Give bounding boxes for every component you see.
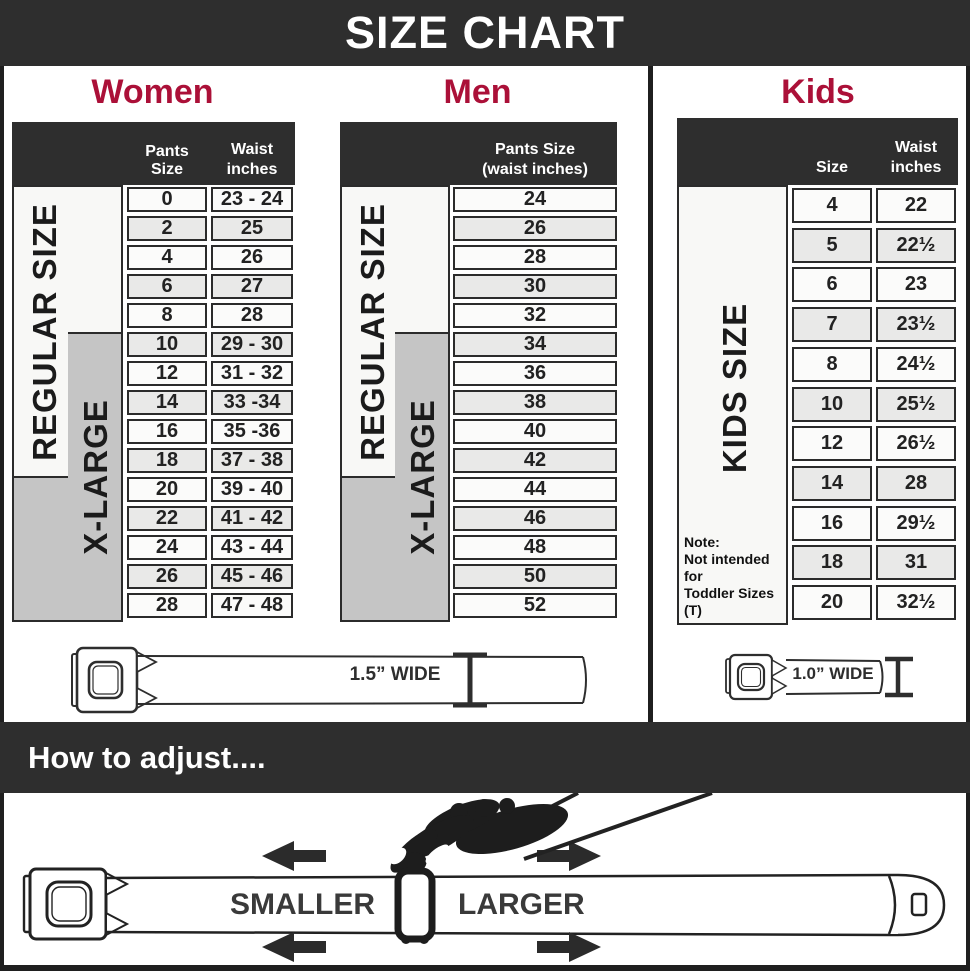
kids-note: Note: Not intended for Toddler Sizes (T) xyxy=(684,534,786,619)
pants-size-cell: 8 xyxy=(127,303,207,328)
adult-belt-width-label: 1.5” WIDE xyxy=(340,664,450,686)
women-xlarge-box: X-LARGE xyxy=(68,332,123,622)
pants-size-cell: 24 xyxy=(453,187,617,212)
waist-inches-cell: 37 - 38 xyxy=(211,448,293,473)
kids-belt-width-label: 1.0” WIDE xyxy=(787,664,879,684)
belt-slider-icon xyxy=(398,871,432,944)
waist-inches-cell: 45 - 46 xyxy=(211,564,293,589)
kids-size-label: KIDS SIZE xyxy=(716,302,754,472)
pants-size-cell: 28 xyxy=(453,245,617,270)
pants-size-cell: 48 xyxy=(453,535,617,560)
size-cell: 20 xyxy=(792,585,872,620)
kids-size-box: KIDS SIZE Note: Not intended for Toddler… xyxy=(677,185,788,625)
size-cell: 7 xyxy=(792,307,872,342)
pants-size-cell: 12 xyxy=(127,361,207,386)
arrow-left-top-icon xyxy=(262,841,326,871)
waist-inches-cell: 23 xyxy=(876,267,956,302)
waist-inches-cell: 29 - 30 xyxy=(211,332,293,357)
waist-inches-cell: 25½ xyxy=(876,387,956,422)
waist-inches-cell: 41 - 42 xyxy=(211,506,293,531)
waist-inches-cell: 31 - 32 xyxy=(211,361,293,386)
seatbelt-buckle-icon xyxy=(24,869,127,939)
pants-size-cell: 28 xyxy=(127,593,207,618)
women-heading: Women xyxy=(0,72,305,112)
waist-inches-cell: 22 xyxy=(876,188,956,223)
men-xlarge-label: X-LARGE xyxy=(404,399,442,555)
pants-size-cell: 38 xyxy=(453,390,617,415)
waist-inches-cell: 25 xyxy=(211,216,293,241)
size-cell: 16 xyxy=(792,506,872,541)
waist-inches-cell: 39 - 40 xyxy=(211,477,293,502)
kids-col2-header-line2: inches xyxy=(876,159,956,177)
size-cell: 8 xyxy=(792,347,872,382)
waist-inches-cell: 43 - 44 xyxy=(211,535,293,560)
kids-table: Size Waist inches KIDS SIZE Note: Not in… xyxy=(677,118,958,625)
larger-label: LARGER xyxy=(458,888,578,922)
women-table: Pants Size Waist inches REGULAR SIZE X-L… xyxy=(12,122,295,625)
pants-size-cell: 0 xyxy=(127,187,207,212)
pants-size-cell: 44 xyxy=(453,477,617,502)
men-table-header: Pants Size (waist inches) xyxy=(340,122,617,185)
pants-size-cell: 10 xyxy=(127,332,207,357)
pants-size-cell: 52 xyxy=(453,593,617,618)
pinching-hand-icon xyxy=(384,793,573,879)
waist-inches-cell: 35 -36 xyxy=(211,419,293,444)
men-regular-size-label: REGULAR SIZE xyxy=(354,203,392,461)
width-measure-icon xyxy=(885,659,913,695)
waist-inches-cell: 28 xyxy=(211,303,293,328)
pants-size-cell: 22 xyxy=(127,506,207,531)
pants-size-cell: 32 xyxy=(453,303,617,328)
waist-inches-cell: 32½ xyxy=(876,585,956,620)
size-cell: 10 xyxy=(792,387,872,422)
waist-inches-cell: 47 - 48 xyxy=(211,593,293,618)
title-banner: SIZE CHART xyxy=(0,0,970,66)
waist-inches-cell: 31 xyxy=(876,545,956,580)
adult-belt-illustration xyxy=(0,630,650,730)
width-measure-icon xyxy=(453,655,487,705)
men-table: Pants Size (waist inches) REGULAR SIZE X… xyxy=(340,122,617,625)
seatbelt-buckle-icon xyxy=(72,648,156,712)
men-xlarge-box: X-LARGE xyxy=(395,332,450,622)
arrow-right-top-icon xyxy=(537,841,601,871)
waist-inches-cell: 24½ xyxy=(876,347,956,382)
arrow-right-bottom-icon xyxy=(537,932,601,962)
women-col2-header-line1: Waist xyxy=(211,141,293,159)
waist-inches-cell: 23 - 24 xyxy=(211,187,293,212)
women-regular-size-label: REGULAR SIZE xyxy=(26,203,64,461)
size-cell: 12 xyxy=(792,426,872,461)
size-cell: 14 xyxy=(792,466,872,501)
pants-size-cell: 26 xyxy=(127,564,207,589)
pants-size-cell: 14 xyxy=(127,390,207,415)
adjust-illustration xyxy=(0,793,970,971)
pants-size-cell: 50 xyxy=(453,564,617,589)
pants-size-cell: 34 xyxy=(453,332,617,357)
kids-col2-header-line1: Waist xyxy=(876,139,956,157)
belt-tab-hole xyxy=(912,894,926,915)
men-col-header-line2: (waist inches) xyxy=(453,161,617,179)
smaller-label: SMALLER xyxy=(230,888,360,922)
waist-inches-cell: 33 -34 xyxy=(211,390,293,415)
women-table-header: Pants Size Waist inches xyxy=(12,122,295,185)
men-xlarge-extension xyxy=(340,478,397,622)
size-cell: 18 xyxy=(792,545,872,580)
women-xlarge-label: X-LARGE xyxy=(77,399,115,555)
waist-inches-cell: 26 xyxy=(211,245,293,270)
kids-table-header: Size Waist inches xyxy=(677,118,958,185)
arrow-left-bottom-icon xyxy=(262,932,326,962)
waist-inches-cell: 23½ xyxy=(876,307,956,342)
kids-heading: Kids xyxy=(658,72,970,112)
seatbelt-buckle-icon xyxy=(726,655,786,699)
men-heading: Men xyxy=(330,72,625,112)
pants-size-cell: 46 xyxy=(453,506,617,531)
waist-inches-cell: 28 xyxy=(876,466,956,501)
pants-size-cell: 20 xyxy=(127,477,207,502)
waist-inches-cell: 27 xyxy=(211,274,293,299)
adjust-band: How to adjust.... xyxy=(0,722,970,793)
pants-size-cell: 4 xyxy=(127,245,207,270)
pants-size-cell: 18 xyxy=(127,448,207,473)
pants-size-cell: 42 xyxy=(453,448,617,473)
waist-inches-cell: 29½ xyxy=(876,506,956,541)
pants-size-cell: 40 xyxy=(453,419,617,444)
men-col-header-line1: Pants Size xyxy=(453,141,617,159)
size-cell: 5 xyxy=(792,228,872,263)
women-col1-header: Pants Size xyxy=(127,143,207,179)
waist-inches-cell: 22½ xyxy=(876,228,956,263)
page-title: SIZE CHART xyxy=(0,0,970,66)
adjust-heading: How to adjust.... xyxy=(0,722,970,793)
pants-size-cell: 16 xyxy=(127,419,207,444)
pants-size-cell: 26 xyxy=(453,216,617,241)
kids-col1-header: Size xyxy=(792,159,872,177)
pants-size-cell: 6 xyxy=(127,274,207,299)
section-divider xyxy=(648,66,653,722)
pants-size-cell: 2 xyxy=(127,216,207,241)
women-col2-header-line2: inches xyxy=(211,161,293,179)
pants-size-cell: 24 xyxy=(127,535,207,560)
waist-inches-cell: 26½ xyxy=(876,426,956,461)
size-cell: 4 xyxy=(792,188,872,223)
size-cell: 6 xyxy=(792,267,872,302)
pants-size-cell: 30 xyxy=(453,274,617,299)
women-xlarge-extension xyxy=(12,478,70,622)
pants-size-cell: 36 xyxy=(453,361,617,386)
